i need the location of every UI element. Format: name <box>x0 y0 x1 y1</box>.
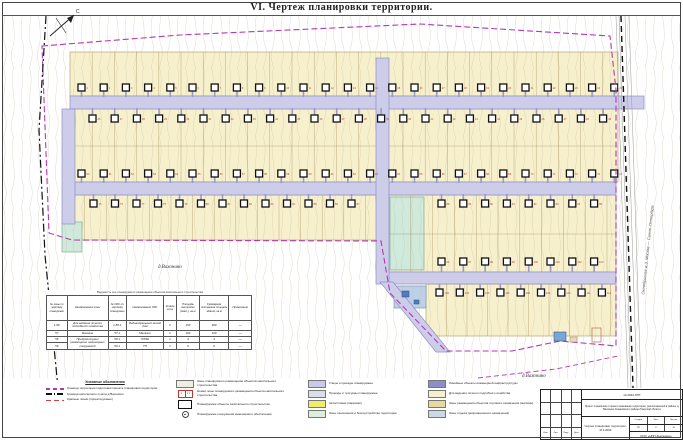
planned-house[interactable] <box>577 115 584 122</box>
stamp-signature-cell <box>551 415 561 427</box>
planned-house[interactable] <box>305 200 312 207</box>
planned-house[interactable] <box>438 258 445 265</box>
legend-item-label: Граница территории подготовки проекта пл… <box>67 387 164 391</box>
zones-table-header-cell: № зоны по чертежу планировки <box>47 296 68 321</box>
planned-house[interactable] <box>591 200 598 207</box>
legend-item: Зоны планируемого размещения объектов ка… <box>176 380 296 388</box>
table-cell: 2 <box>163 321 176 331</box>
planned-house[interactable] <box>547 258 554 265</box>
title-block: Изм.ЛистПодп.Дата 14-2023-ППТ Проект пла… <box>540 389 683 440</box>
table-cell: Индивидуальный жилой дом <box>126 321 163 331</box>
planned-house[interactable] <box>145 84 152 91</box>
table-cell: 1 <box>163 343 176 350</box>
legend-item-label: Улицы и проезды планируемые <box>329 382 416 386</box>
zones-table-header-cell: Примечание <box>229 296 252 321</box>
planned-house[interactable] <box>344 84 351 91</box>
surface-swatch <box>308 410 326 418</box>
settlement-label-left: д.Вахонино <box>158 265 182 270</box>
zones-table-header-cell: № ОКС по чертежу планировки <box>108 296 126 321</box>
planned-house[interactable] <box>133 115 140 122</box>
surface-swatch <box>308 390 326 398</box>
planned-house[interactable] <box>289 115 296 122</box>
surface-swatch <box>308 400 326 408</box>
planned-house[interactable] <box>176 200 183 207</box>
planned-house[interactable] <box>322 84 329 91</box>
planned-house[interactable] <box>503 258 510 265</box>
stamp-signature-cell <box>562 403 572 415</box>
planned-house[interactable] <box>389 170 396 177</box>
parcel-number: 105 <box>465 291 470 295</box>
drawing-sheet: VI. Чертеж планировки территории. <box>0 0 683 440</box>
planned-house[interactable] <box>460 200 467 207</box>
stamp-signature-cell <box>551 390 561 402</box>
street-south[interactable] <box>380 272 616 284</box>
parcel-number: 100 <box>534 260 539 264</box>
parcel-number: 111 <box>587 291 591 295</box>
stamp-signature-cell <box>572 390 581 402</box>
zones-table-block: Ведомость зон планируемого размещения об… <box>46 290 254 350</box>
legend-item: Зоны озеленения и благоустройства террит… <box>308 410 416 418</box>
planned-house[interactable] <box>278 170 285 177</box>
planned-house[interactable] <box>284 200 291 207</box>
table-cell: — <box>229 321 252 331</box>
planned-house[interactable] <box>378 115 385 122</box>
planned-house[interactable] <box>436 289 443 296</box>
planned-house[interactable] <box>477 289 484 296</box>
table-cell: — <box>229 343 252 350</box>
planned-house[interactable] <box>547 200 554 207</box>
legend: Условные обозначения Граница территории … <box>46 380 606 418</box>
planned-house[interactable] <box>611 84 618 91</box>
legend-item-label: Линейные объекты инженерной инфраструкту… <box>449 382 610 386</box>
planned-house[interactable] <box>422 115 429 122</box>
planned-house[interactable] <box>156 115 163 122</box>
legend-item: 11.1Номер зоны планируемого размещения о… <box>176 390 296 398</box>
planned-house[interactable] <box>555 115 562 122</box>
planned-house[interactable] <box>482 200 489 207</box>
planned-house[interactable] <box>538 289 545 296</box>
legend-item-label: Зоны планируемого размещения объектов ка… <box>197 380 296 387</box>
zone-swatch <box>428 380 446 388</box>
legend-item-label: Номер зоны планируемого размещения объек… <box>197 390 296 397</box>
street-middle[interactable] <box>64 182 616 195</box>
planned-house[interactable] <box>219 200 226 207</box>
zones-table-header-cell: Площадь застройки (макс.), кв.м <box>177 296 200 321</box>
stamp-meta-value: 6 <box>648 425 666 432</box>
legend-item-label: Проезды и тротуары планируемые <box>329 392 416 396</box>
settlement-label-bottom: д.Вахонино <box>522 374 546 379</box>
legend-item-label: Зоны озеленения и благоустройства террит… <box>329 412 416 416</box>
street-west[interactable] <box>62 109 75 224</box>
planned-house[interactable] <box>389 84 396 91</box>
zones-table-header-cell: Этажность <box>163 296 176 321</box>
planned-house[interactable] <box>89 115 96 122</box>
planned-house[interactable] <box>460 258 467 265</box>
project-boundary-symbol <box>46 388 64 390</box>
planned-house[interactable] <box>511 115 518 122</box>
table-cell: ТП <box>126 343 163 350</box>
parcel-number: 109 <box>546 291 551 295</box>
planned-house[interactable] <box>456 289 463 296</box>
legend-item-label: Планируемые сооружения инженерного обесп… <box>197 413 296 417</box>
table-cell: 59.1 <box>108 343 126 350</box>
stamp-signature-cell <box>572 415 581 427</box>
planned-house[interactable] <box>566 84 573 91</box>
stamp-sheet-title: Чертеж планировки территории. М 1:2000 <box>582 417 630 439</box>
table-cell: 59 <box>47 343 68 350</box>
parcel-number: 110 <box>566 291 571 295</box>
legend-item-label: Красные линии (проектируемые) <box>67 398 164 402</box>
parcel-number: 106 <box>485 291 490 295</box>
parcel-number: 112 <box>607 291 612 295</box>
zone-box-symbol <box>176 380 194 388</box>
planned-house[interactable] <box>500 170 507 177</box>
stamp-signature-cell: Подп. <box>562 428 572 440</box>
stamp-signature-cell <box>541 415 551 427</box>
planned-house[interactable] <box>589 84 596 91</box>
table-cell: 1-56 <box>47 321 68 331</box>
planned-house[interactable] <box>522 170 529 177</box>
planned-house[interactable] <box>611 170 618 177</box>
table-row: 1-56Для ведения личного подсобного хозяй… <box>47 321 252 331</box>
zone-swatch <box>428 400 446 408</box>
planned-house[interactable] <box>503 200 510 207</box>
zone-swatch <box>428 410 446 418</box>
planned-house[interactable] <box>525 258 532 265</box>
planned-house[interactable] <box>133 200 140 207</box>
stamp-meta-header: Лист <box>648 417 666 424</box>
planned-house[interactable] <box>311 115 318 122</box>
planned-house[interactable] <box>598 289 605 296</box>
planned-house[interactable] <box>198 200 205 207</box>
planned-house[interactable] <box>525 200 532 207</box>
planned-house[interactable] <box>478 84 485 91</box>
legend-item: Планируемые объекты капитального строите… <box>176 400 296 409</box>
planned-house[interactable] <box>233 84 240 91</box>
planned-house[interactable] <box>211 170 218 177</box>
planned-house[interactable] <box>241 200 248 207</box>
planned-house[interactable] <box>145 170 152 177</box>
table-cell: Для ведения личного подсобного хозяйства <box>67 321 108 331</box>
planned-house[interactable] <box>444 115 451 122</box>
planned-house[interactable] <box>489 115 496 122</box>
table-cell: 1-56.1 <box>108 321 126 331</box>
territory-plan-map[interactable]: 1234567891011121314151617181920212223242… <box>0 0 683 440</box>
planned-house[interactable] <box>455 84 462 91</box>
planned-house[interactable] <box>355 115 362 122</box>
planned-house[interactable] <box>189 170 196 177</box>
table-cell: 6 <box>177 343 200 350</box>
planned-house[interactable] <box>400 115 407 122</box>
settlement-boundary-symbol <box>46 393 64 395</box>
planned-house[interactable] <box>262 200 269 207</box>
stamp-signature-cell: Лист <box>551 428 561 440</box>
planned-house[interactable] <box>589 170 596 177</box>
planned-house[interactable] <box>517 289 524 296</box>
stamp-signature-cell <box>562 390 572 402</box>
planned-house[interactable] <box>522 84 529 91</box>
legend-item-label: Планируемые объекты капитального строите… <box>197 403 296 407</box>
planned-house[interactable] <box>411 84 418 91</box>
planned-house[interactable] <box>411 170 418 177</box>
planned-house[interactable] <box>167 84 174 91</box>
planned-house[interactable] <box>100 170 107 177</box>
zones-table-header-cell: Суммарная поэтажная площадь здания, кв.м <box>199 296 229 321</box>
planned-house[interactable] <box>278 84 285 91</box>
planned-house[interactable] <box>300 84 307 91</box>
stamp-organization: ООО «НПП Землемер» <box>630 432 682 439</box>
planned-house[interactable] <box>544 84 551 91</box>
stamp-signature-cell: Дата <box>572 428 581 440</box>
planned-house[interactable] <box>500 84 507 91</box>
parcel-number: 107 <box>505 291 510 295</box>
planned-house[interactable] <box>211 84 218 91</box>
planned-house[interactable] <box>167 170 174 177</box>
planned-house[interactable] <box>544 170 551 177</box>
planned-house[interactable] <box>569 200 576 207</box>
legend-item: Проезды и тротуары планируемые <box>308 390 416 398</box>
legend-heading: Условные обозначения <box>46 380 164 384</box>
legend-item: Улицы и проезды планируемые <box>308 380 416 388</box>
planned-house[interactable] <box>267 115 274 122</box>
planned-house[interactable] <box>558 289 565 296</box>
zones-table-caption: Ведомость зон планируемого размещения об… <box>46 290 254 294</box>
planned-house[interactable] <box>178 115 185 122</box>
legend-item-label: Граница населенного пункта д.Вахонино <box>67 393 164 397</box>
zone-swatch <box>428 390 446 398</box>
table-cell: Предусмотрено размещение инженерных соор… <box>67 336 108 349</box>
planned-house[interactable] <box>100 84 107 91</box>
parcel-number: 103 <box>599 260 604 264</box>
legend-item: Красные линии (проектируемые) <box>46 398 164 402</box>
planned-house[interactable] <box>433 84 440 91</box>
parcel-number: 108 <box>526 291 531 295</box>
stamp-signature-cell <box>551 403 561 415</box>
planned-house[interactable] <box>244 115 251 122</box>
planned-house[interactable] <box>344 170 351 177</box>
legend-item: Линейные объекты инженерной инфраструкту… <box>428 380 610 388</box>
stamp-meta-value: ПП <box>630 425 648 432</box>
planned-house[interactable] <box>155 200 162 207</box>
planned-house[interactable] <box>533 115 540 122</box>
planned-house[interactable] <box>256 84 263 91</box>
planned-house[interactable] <box>455 170 462 177</box>
planned-house[interactable] <box>367 170 374 177</box>
north-label: С <box>76 9 80 15</box>
planned-house[interactable] <box>300 170 307 177</box>
stamp-signature-cell <box>572 403 581 415</box>
planned-house[interactable] <box>367 84 374 91</box>
planned-house[interactable] <box>482 258 489 265</box>
planned-house[interactable] <box>466 115 473 122</box>
zones-table-header-cell: Наименование ОКС <box>126 296 163 321</box>
table-cell: 150 <box>177 321 200 331</box>
table-cell: 6 <box>199 343 229 350</box>
stamp-signature-cell <box>562 415 572 427</box>
zones-table-header-cell: Наименование зоны <box>67 296 108 321</box>
planned-house[interactable] <box>322 170 329 177</box>
planned-house[interactable] <box>333 115 340 122</box>
parcel-number: 104 <box>445 291 450 295</box>
stamp-signature-cell <box>541 390 551 402</box>
planned-house[interactable] <box>348 200 355 207</box>
legend-item: Планируемые сооружения инженерного обесп… <box>176 411 296 418</box>
stamp-meta-header: Стадия <box>630 417 648 424</box>
zones-table-header-row: № зоны по чертежу планировкиНаименование… <box>47 296 252 321</box>
planned-house[interactable] <box>497 289 504 296</box>
planned-house[interactable] <box>478 170 485 177</box>
planned-house[interactable] <box>189 84 196 91</box>
legend-item: Автостоянки (парковки) <box>308 400 416 408</box>
planned-house[interactable] <box>578 289 585 296</box>
planned-house[interactable] <box>112 200 119 207</box>
planned-house[interactable] <box>122 170 129 177</box>
planned-house[interactable] <box>256 170 263 177</box>
planned-house[interactable] <box>111 115 118 122</box>
planned-house[interactable] <box>122 84 129 91</box>
stamp-doc-number: 14-2023-ППТ <box>582 390 682 400</box>
planned-house[interactable] <box>600 115 607 122</box>
stamp-project-name: Проект планировки и проект межевания тер… <box>582 400 682 417</box>
surface-swatch <box>308 380 326 388</box>
legend-item: Граница территории подготовки проекта пл… <box>46 387 164 391</box>
table-cell: 300 <box>199 321 229 331</box>
planned-house[interactable] <box>90 200 97 207</box>
planned-house[interactable] <box>222 115 229 122</box>
street-north[interactable] <box>70 96 644 109</box>
red-lines-symbol <box>46 400 64 401</box>
stamp-meta-value: 16 <box>665 425 682 432</box>
parcel-number: 101 <box>556 260 561 264</box>
planned-house[interactable] <box>327 200 334 207</box>
stamp-meta-header: Листов <box>665 417 682 424</box>
well-circle-symbol <box>176 411 194 418</box>
planned-house[interactable] <box>200 115 207 122</box>
planned-house[interactable] <box>233 170 240 177</box>
zones-table: № зоны по чертежу планировкиНаименование… <box>46 295 252 350</box>
stamp-signature-cell: Изм. <box>541 428 551 440</box>
planned-house[interactable] <box>566 170 573 177</box>
planned-house[interactable] <box>569 258 576 265</box>
planned-house[interactable] <box>591 258 598 265</box>
building-rect-symbol <box>176 400 194 409</box>
stamp-signature-cell <box>541 403 551 415</box>
parcel-number: 102 <box>577 260 582 264</box>
planned-house[interactable] <box>78 84 85 91</box>
zone-number-symbol: 11.1 <box>176 390 194 398</box>
legend-item: Граница населенного пункта д.Вахонино <box>46 393 164 397</box>
legend-item-label: Автостоянки (парковки) <box>329 402 416 406</box>
planned-house[interactable] <box>438 200 445 207</box>
planned-house[interactable] <box>78 170 85 177</box>
planned-house[interactable] <box>433 170 440 177</box>
